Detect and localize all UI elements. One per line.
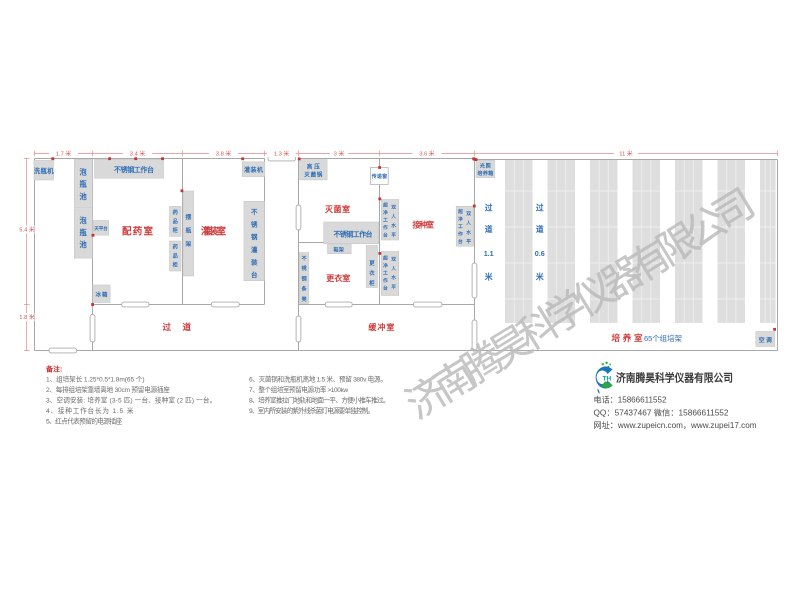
svg-text:不: 不 <box>301 255 307 262</box>
svg-text:不: 不 <box>251 208 258 216</box>
svg-text:超: 超 <box>382 202 388 209</box>
svg-text:台: 台 <box>251 270 258 279</box>
svg-text:泡: 泡 <box>79 168 87 177</box>
svg-text:灭菌锅: 灭菌锅 <box>303 171 322 179</box>
svg-text:摆: 摆 <box>185 213 191 221</box>
svg-text:米: 米 <box>536 272 544 282</box>
svg-text:水: 水 <box>390 222 396 229</box>
svg-text:水: 水 <box>390 274 396 281</box>
svg-text:瓶: 瓶 <box>185 227 191 235</box>
svg-text:人: 人 <box>391 213 396 220</box>
svg-text:光照: 光照 <box>479 162 492 170</box>
svg-text:4、接种工作台长为 1.5 米: 4、接种工作台长为 1.5 米 <box>46 406 134 415</box>
svg-text:QQ：57437467 微信：15866611552: QQ：57437467 微信：15866611552 <box>594 407 729 417</box>
svg-text:锈: 锈 <box>251 220 258 229</box>
svg-text:超: 超 <box>457 208 463 215</box>
svg-text:灌装室: 灌装室 <box>201 226 226 238</box>
svg-text:6、灭菌锅和洗瓶机离地 1.5 米、预留 380v 电源。: 6、灭菌锅和洗瓶机离地 1.5 米、预留 380v 电源。 <box>249 374 387 383</box>
svg-text:3.4 米: 3.4 米 <box>130 149 146 157</box>
svg-text:工: 工 <box>383 271 388 277</box>
svg-text:网址：www.zupeicn.com，www.zupei17: 网址：www.zupeicn.com，www.zupei17.com <box>594 420 757 430</box>
svg-text:品: 品 <box>173 252 178 260</box>
svg-text:备注:: 备注: <box>45 365 62 374</box>
svg-text:配药室: 配药室 <box>122 226 153 238</box>
svg-text:泡: 泡 <box>79 216 87 225</box>
svg-text:道: 道 <box>485 224 493 234</box>
svg-text:药: 药 <box>173 243 178 251</box>
svg-text:双: 双 <box>466 210 471 217</box>
svg-text:过: 过 <box>485 202 493 212</box>
svg-text:台: 台 <box>458 238 463 245</box>
svg-text:双: 双 <box>391 204 396 211</box>
svg-text:1.3 米: 1.3 米 <box>274 149 290 157</box>
svg-text:人: 人 <box>466 220 471 227</box>
svg-text:高压: 高压 <box>307 162 320 170</box>
svg-text:柜: 柜 <box>173 226 179 234</box>
svg-text:工: 工 <box>383 218 388 224</box>
svg-text:65个组培架: 65个组培架 <box>644 333 683 343</box>
svg-text:道: 道 <box>536 224 544 234</box>
svg-text:台: 台 <box>383 285 388 292</box>
svg-text:更: 更 <box>369 259 375 267</box>
svg-text:不锈钢工作台: 不锈钢工作台 <box>334 229 373 238</box>
svg-text:5、红点代表预留的电源插座: 5、红点代表预留的电源插座 <box>46 417 123 426</box>
svg-text:8、培养室推拉门地轨和地面一平、方便小推车推过。: 8、培养室推拉门地轨和地面一平、方便小推车推过。 <box>249 396 390 405</box>
svg-text:1.8 米: 1.8 米 <box>19 313 35 321</box>
svg-text:池: 池 <box>79 240 87 249</box>
svg-text:平: 平 <box>391 231 396 238</box>
svg-text:过: 过 <box>536 202 544 212</box>
svg-text:作: 作 <box>458 231 463 238</box>
svg-text:作: 作 <box>383 277 388 284</box>
svg-text:3 米: 3 米 <box>334 149 345 157</box>
svg-text:作: 作 <box>383 224 388 231</box>
svg-text:柜: 柜 <box>368 279 375 287</box>
svg-text:1、组培架长 1.25*0.5*1.8m(65 个): 1、组培架长 1.25*0.5*1.8m(65 个) <box>46 374 145 383</box>
svg-text:衣: 衣 <box>369 269 375 277</box>
svg-text:1.7 米: 1.7 米 <box>56 149 72 157</box>
svg-text:人: 人 <box>391 265 396 272</box>
svg-text:冰箱: 冰箱 <box>96 290 108 298</box>
svg-text:9、室内所安装的紫外线杀菌灯电源要单独控制。: 9、室内所安装的紫外线杀菌灯电源要单独控制。 <box>249 406 374 415</box>
svg-text:凳: 凳 <box>300 295 307 303</box>
svg-text:瓶: 瓶 <box>79 180 87 189</box>
svg-text:米: 米 <box>485 272 493 282</box>
svg-text:瓶: 瓶 <box>79 228 87 237</box>
svg-text:架: 架 <box>184 240 191 248</box>
svg-text:更衣室: 更衣室 <box>326 273 350 283</box>
svg-text:净: 净 <box>458 216 463 223</box>
svg-text:5.4 米: 5.4 米 <box>19 226 35 234</box>
svg-text:培养室: 培养室 <box>612 333 643 343</box>
svg-text:钢: 钢 <box>301 274 306 282</box>
svg-text:装: 装 <box>250 257 258 266</box>
svg-text:品: 品 <box>173 217 178 225</box>
svg-text:培养箱: 培养箱 <box>477 169 494 177</box>
svg-text:电话：15866611552: 电话：15866611552 <box>594 395 667 405</box>
svg-text:工: 工 <box>458 224 463 230</box>
svg-text:3、空调安装: 培养室 (3-5 匹) 一台、接种室 (2: 3、空调安装: 培养室 (3-5 匹) 一台、接种室 (2 匹) 一台。 <box>46 396 216 405</box>
svg-text:洗瓶机: 洗瓶机 <box>34 166 55 175</box>
svg-text:池: 池 <box>79 192 87 201</box>
svg-text:药: 药 <box>173 208 178 216</box>
svg-text:鞋架: 鞋架 <box>333 247 344 254</box>
svg-text:3.6 米: 3.6 米 <box>419 149 435 157</box>
svg-text:1.1: 1.1 <box>484 249 494 258</box>
svg-text:锈: 锈 <box>301 264 307 272</box>
svg-text:条: 条 <box>300 285 307 293</box>
svg-text:不锈钢工作台: 不锈钢工作台 <box>114 165 154 174</box>
svg-text:净: 净 <box>383 209 388 216</box>
svg-text:济南腾昊科学仪器有限公司: 济南腾昊科学仪器有限公司 <box>616 371 733 385</box>
svg-text:净: 净 <box>383 262 388 269</box>
svg-text:灭菌室: 灭菌室 <box>324 204 350 214</box>
svg-text:平: 平 <box>466 238 471 245</box>
svg-text:空调: 空调 <box>759 336 772 344</box>
svg-text:天平台: 天平台 <box>94 225 108 232</box>
svg-text:台: 台 <box>383 232 388 239</box>
svg-text:钢: 钢 <box>251 232 258 241</box>
svg-text:缓冲室: 缓冲室 <box>368 322 394 332</box>
svg-text:11 米: 11 米 <box>619 149 633 157</box>
svg-text:7、整个组培室预留电源功率 >100kw: 7、整个组培室预留电源功率 >100kw <box>249 385 348 394</box>
svg-text:平: 平 <box>391 283 396 290</box>
svg-text:2、每排组培架靠墙离地 30cm 预留电源插座: 2、每排组培架靠墙离地 30cm 预留电源插座 <box>46 385 170 394</box>
svg-text:超: 超 <box>382 255 388 262</box>
svg-text:3.8 米: 3.8 米 <box>216 149 232 157</box>
svg-text:TH: TH <box>603 376 612 383</box>
svg-text:柜: 柜 <box>173 261 179 269</box>
svg-text:水: 水 <box>465 229 471 236</box>
svg-text:双: 双 <box>391 256 396 263</box>
svg-text:传递窗: 传递窗 <box>371 173 388 180</box>
svg-text:接种室: 接种室 <box>413 219 435 229</box>
svg-text:灌: 灌 <box>251 245 258 254</box>
svg-text:灌装机: 灌装机 <box>244 166 263 174</box>
svg-text:0.6: 0.6 <box>535 249 545 258</box>
